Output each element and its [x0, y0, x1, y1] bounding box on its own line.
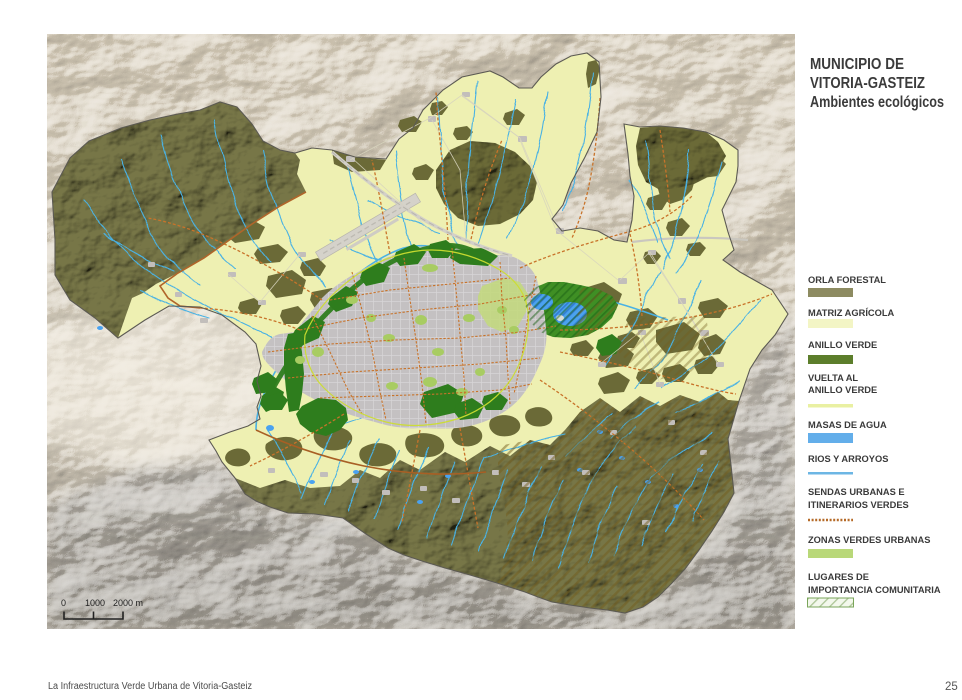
svg-text:LUGARES DE: LUGARES DE — [808, 572, 869, 582]
svg-text:0: 0 — [61, 598, 66, 608]
svg-text:RIOS Y ARROYOS: RIOS Y ARROYOS — [808, 454, 888, 464]
svg-text:Ambientes ecológicos: Ambientes ecológicos — [810, 94, 944, 111]
svg-text:ANILLO VERDE: ANILLO VERDE — [808, 385, 877, 395]
svg-text:ORLA FORESTAL: ORLA FORESTAL — [808, 275, 886, 285]
svg-text:ZONAS VERDES URBANAS: ZONAS VERDES URBANAS — [808, 535, 930, 545]
svg-text:ITINERARIOS VERDES: ITINERARIOS VERDES — [808, 500, 909, 510]
svg-text:MASAS DE AGUA: MASAS DE AGUA — [808, 420, 887, 430]
svg-text:La Infraestructura Verde Urban: La Infraestructura Verde Urbana de Vitor… — [48, 681, 252, 692]
svg-text:ANILLO VERDE: ANILLO VERDE — [808, 340, 877, 350]
svg-text:25: 25 — [945, 681, 958, 693]
svg-text:2000 m: 2000 m — [113, 598, 143, 608]
svg-text:MUNICIPIO DE: MUNICIPIO DE — [810, 56, 904, 73]
svg-text:IMPORTANCIA COMUNITARIA: IMPORTANCIA COMUNITARIA — [808, 585, 941, 595]
svg-text:MATRIZ AGRÍCOLA: MATRIZ AGRÍCOLA — [808, 308, 895, 318]
svg-text:VUELTA AL: VUELTA AL — [808, 373, 858, 383]
svg-text:1000: 1000 — [85, 598, 105, 608]
svg-text:VITORIA-GASTEIZ: VITORIA-GASTEIZ — [810, 75, 925, 92]
svg-text:SENDAS URBANAS E: SENDAS URBANAS E — [808, 487, 905, 497]
